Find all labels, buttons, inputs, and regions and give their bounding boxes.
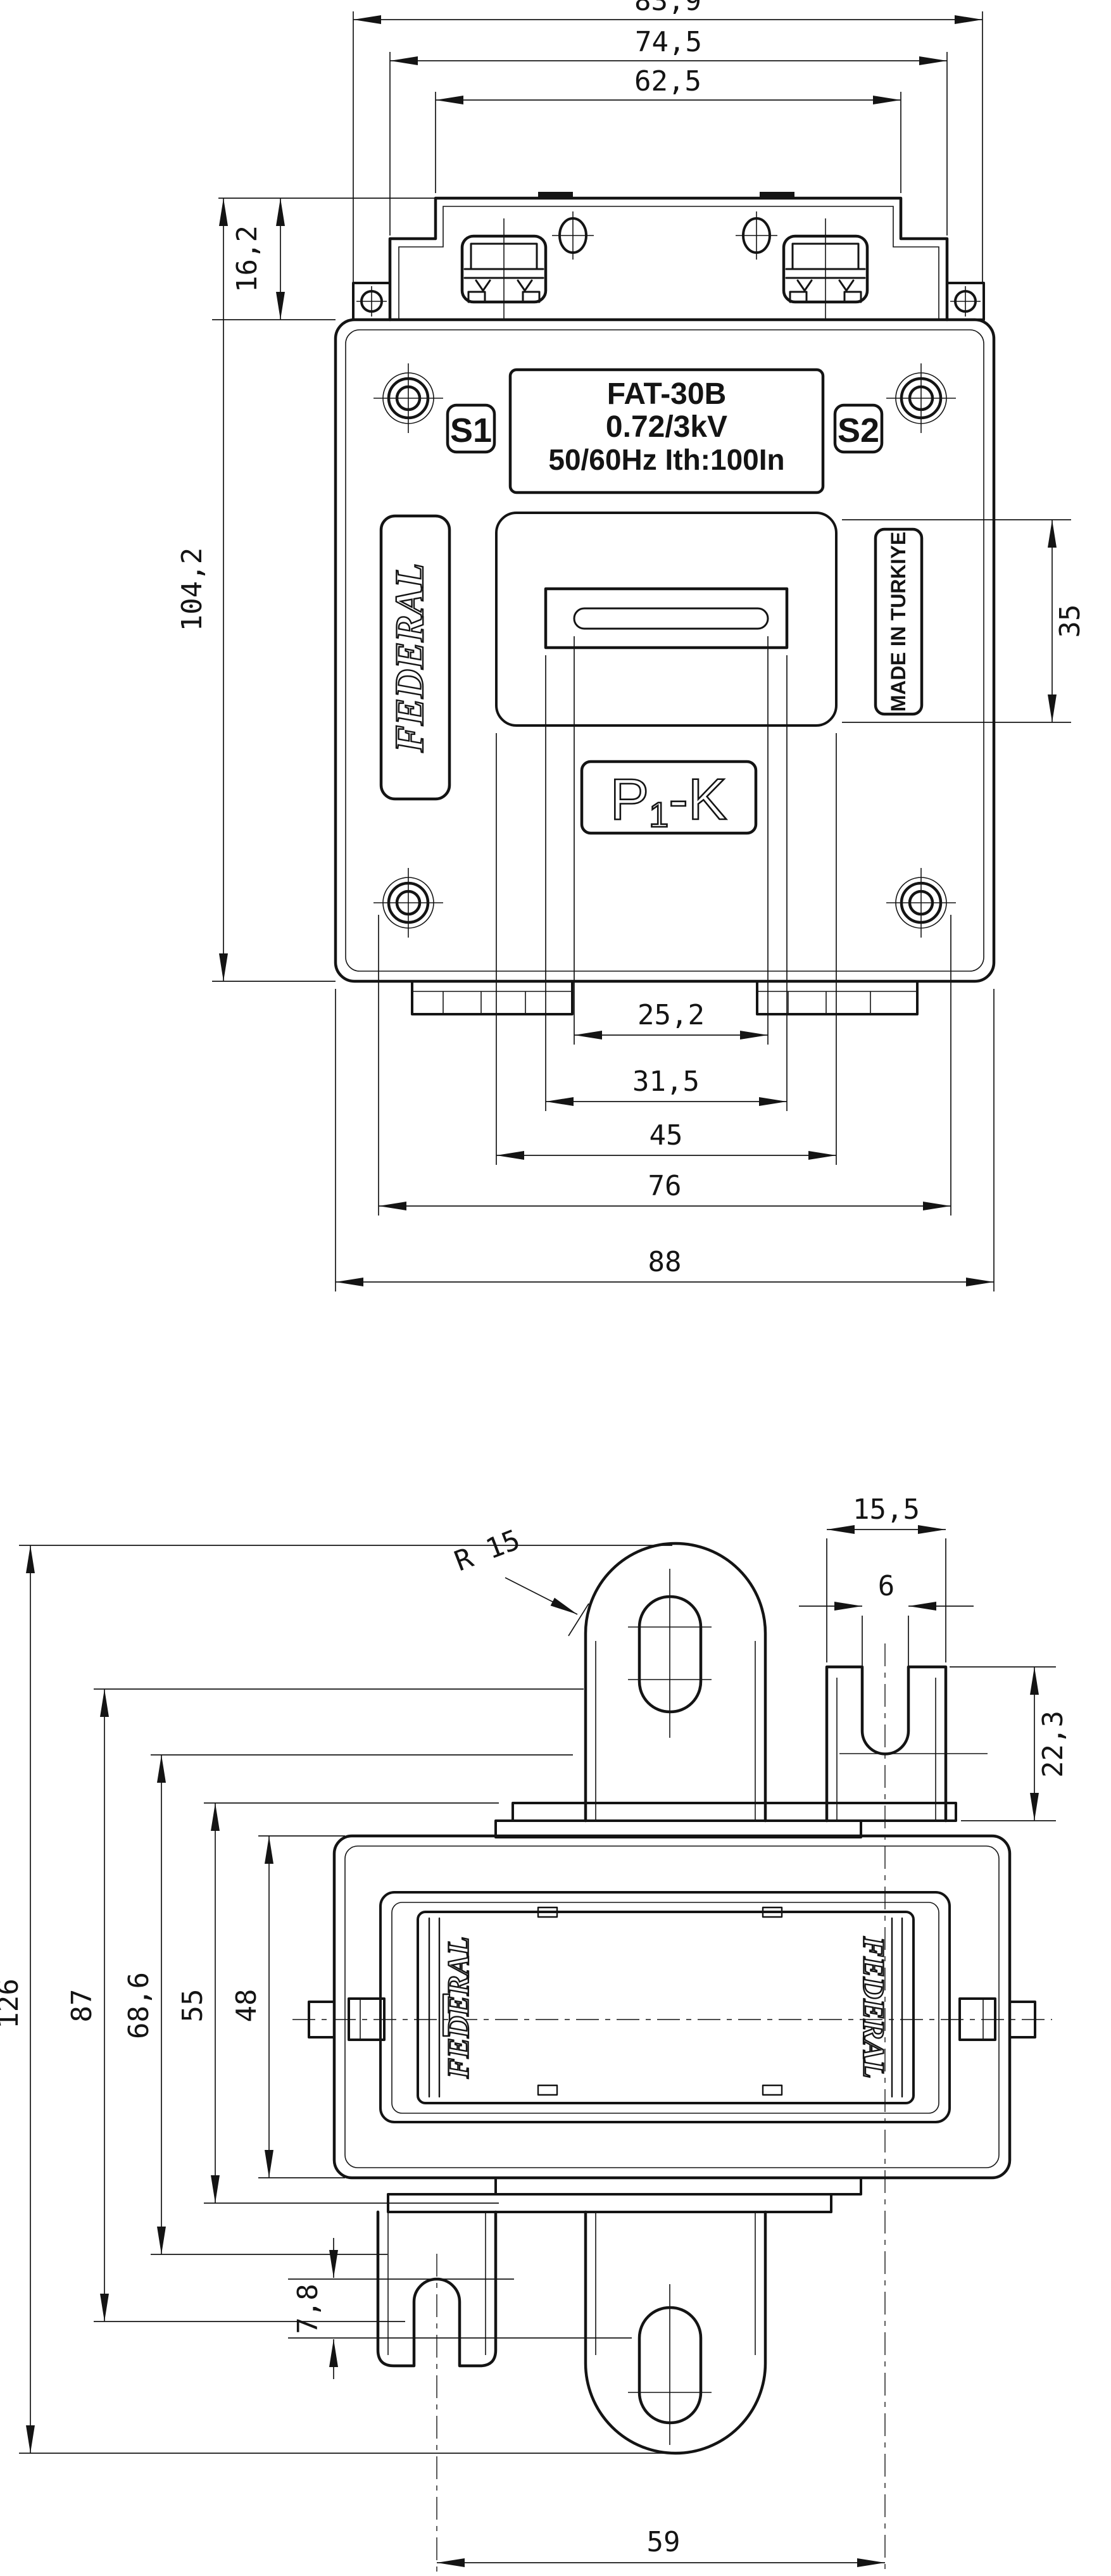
nameplate-voltage: 0.72/3kV xyxy=(606,410,727,444)
dim-text-22-3: 22,3 xyxy=(1037,1711,1069,1778)
svg-text:P1-K: P1-K xyxy=(610,767,727,834)
dim-text-15-5: 15,5 xyxy=(853,1493,920,1526)
dim-text-87: 87 xyxy=(66,1989,98,2023)
dim-text-62-5: 62,5 xyxy=(634,65,701,97)
brand-text-side-right: FEDERAL xyxy=(857,1936,890,2078)
dim-text-48: 48 xyxy=(230,1989,263,2023)
dim-text-126: 126 xyxy=(0,1978,25,2028)
brand-text-front: FEDERAL xyxy=(387,563,432,753)
dim-text-76: 76 xyxy=(648,1170,682,1202)
dim-text-74-5: 74,5 xyxy=(635,26,702,58)
terminal-label-s1: S1 xyxy=(448,405,494,452)
paper-background xyxy=(0,0,1111,2576)
brand-text-side-left: FEDERAL xyxy=(442,1937,475,2079)
dim-text-7-8: 7,8 xyxy=(292,2284,324,2334)
s2-text: S2 xyxy=(838,412,879,449)
dim-text-6: 6 xyxy=(878,1570,895,1602)
technical-drawing-page: 83,9 74,5 62,5 16,2 104,2 xyxy=(0,0,1111,2576)
dim-text-88: 88 xyxy=(648,1246,682,1278)
dim-text-68-6: 68,6 xyxy=(123,1972,155,2039)
dim-text-59: 59 xyxy=(647,2526,681,2558)
nameplate-rating: 50/60Hz Ith:100In xyxy=(548,443,784,476)
s1-text: S1 xyxy=(450,412,492,449)
dim-text-25-2: 25,2 xyxy=(637,999,705,1031)
polarity-sub: 1 xyxy=(649,795,668,834)
polarity-k: -K xyxy=(668,767,727,832)
dim-text-16-2: 16,2 xyxy=(231,225,263,292)
polarity-p: P xyxy=(610,767,649,832)
dim-text-104-2: 104,2 xyxy=(176,548,208,631)
dim-text-83-9: 83,9 xyxy=(634,0,701,17)
terminal-label-s2: S2 xyxy=(835,405,882,452)
dim-text-45: 45 xyxy=(650,1119,683,1152)
origin-text: MADE IN TURKIYE xyxy=(887,532,910,712)
drawing-canvas: 83,9 74,5 62,5 16,2 104,2 xyxy=(0,0,1111,2576)
dim-text-35: 35 xyxy=(1054,605,1086,638)
dim-text-55: 55 xyxy=(177,1989,209,2023)
dim-text-31-5: 31,5 xyxy=(632,1065,700,1098)
nameplate-model: FAT-30B xyxy=(607,377,726,411)
